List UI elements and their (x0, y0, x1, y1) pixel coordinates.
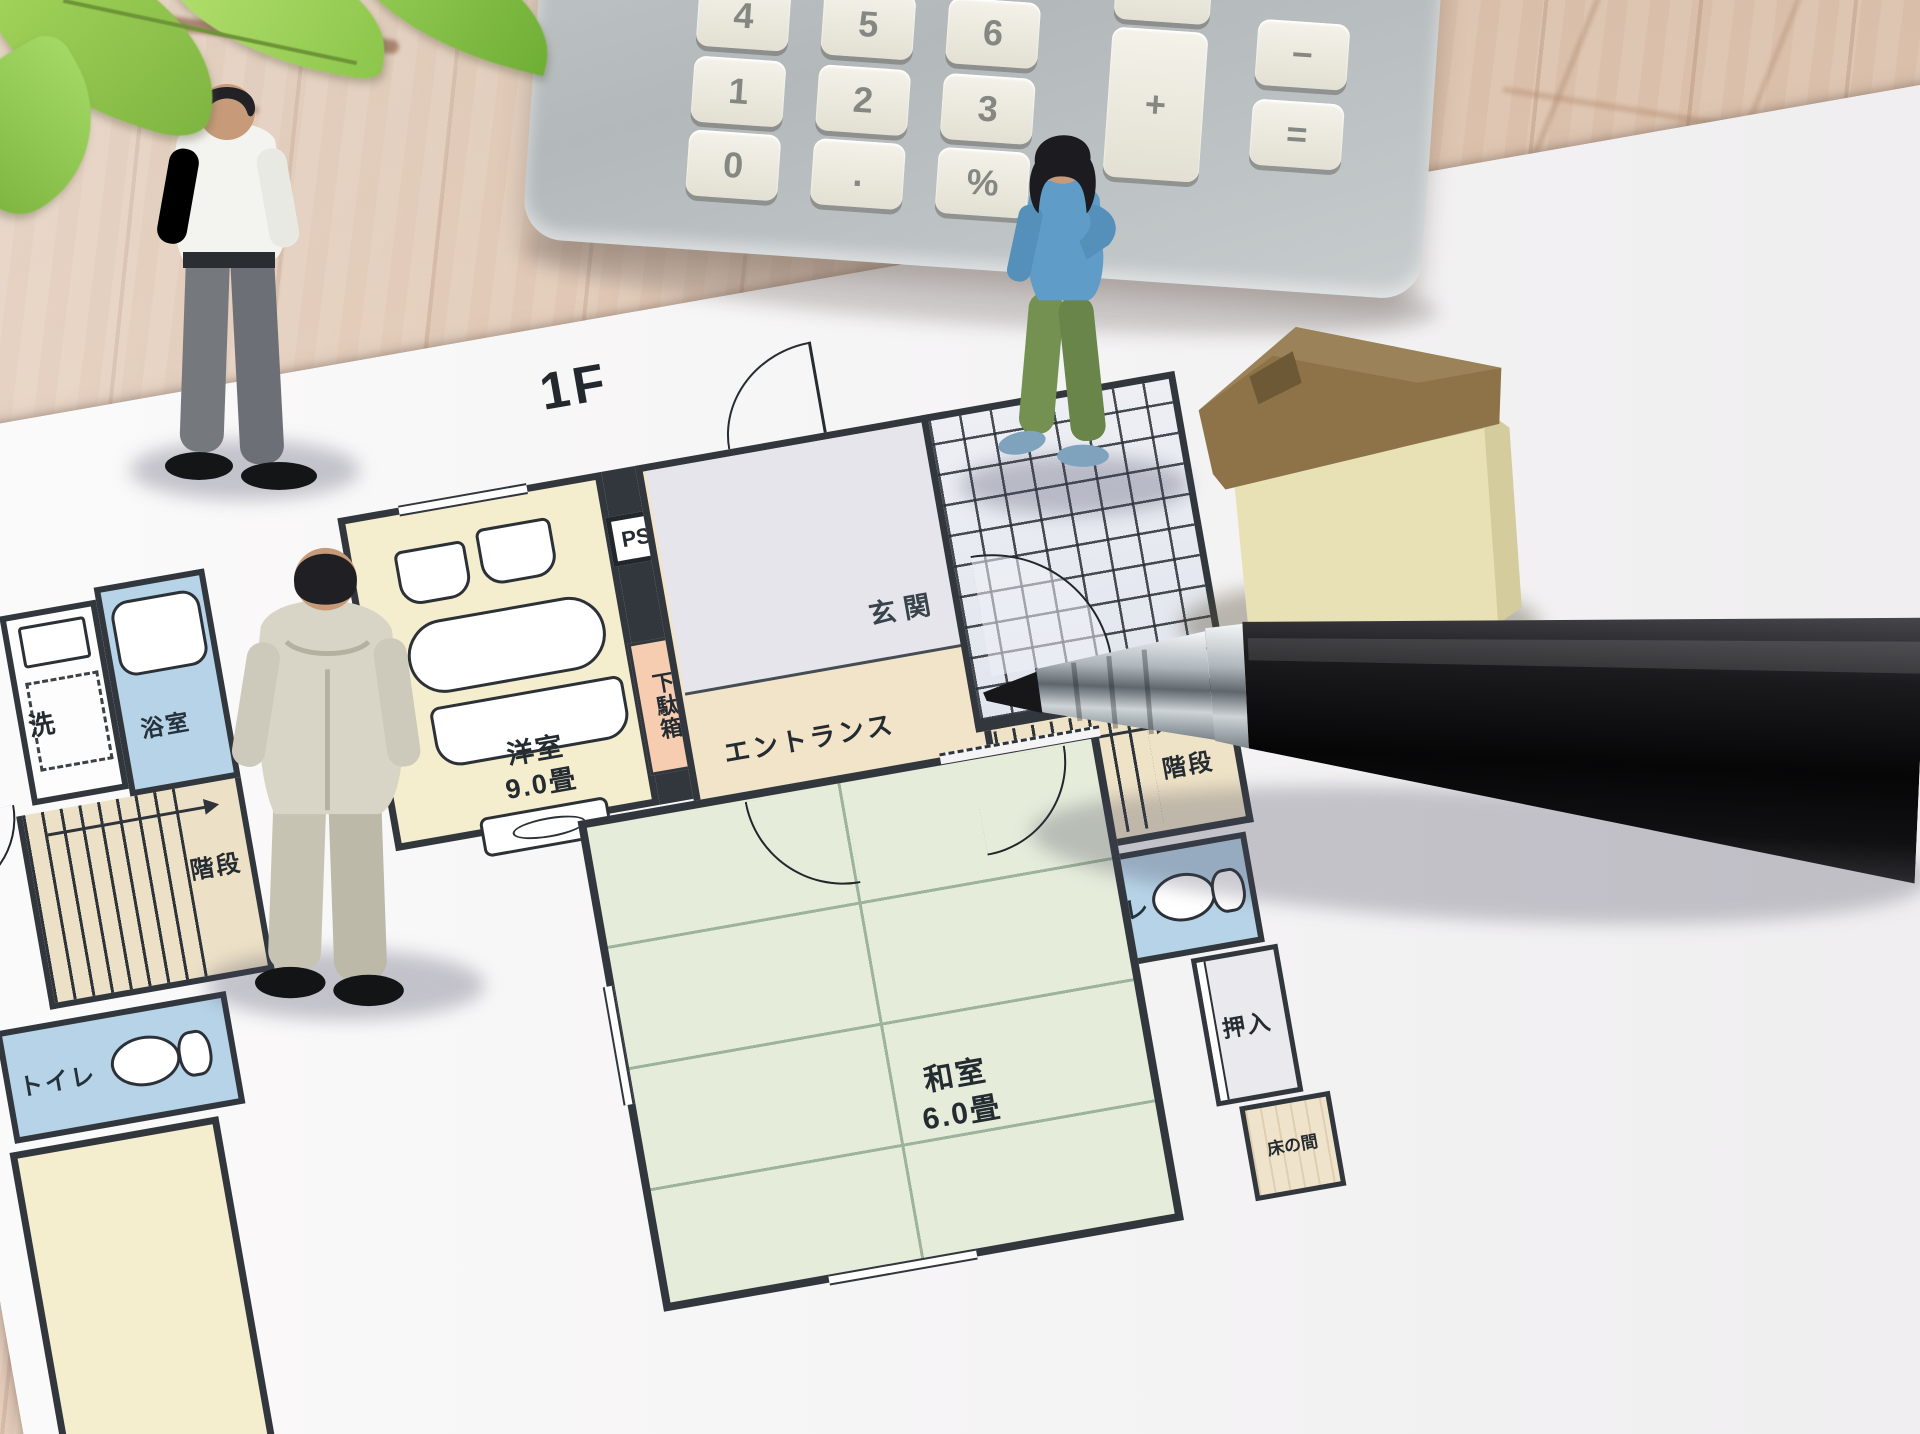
room-closet-label: 押入 (1220, 1007, 1274, 1044)
room-lower-left (9, 1116, 286, 1434)
calc-key-5: 5 (820, 0, 916, 61)
calc-key-equals: = (1249, 98, 1345, 170)
room-tokonoma-label: 床の間 (1266, 1131, 1320, 1161)
room-closet: 押入 (1191, 944, 1304, 1107)
calc-key-2: 2 (815, 64, 911, 136)
figure-man-center (208, 540, 443, 1010)
figure-man-left (115, 80, 335, 500)
room-genkan-label: 玄関 (866, 588, 941, 633)
calc-key-minus: − (1254, 19, 1350, 91)
photo-scene: 1F 洋室 9.0畳 PS (0, 0, 1920, 1434)
bathtub-icon (109, 588, 211, 678)
room-japanese-label: 和室 6.0畳 (883, 1046, 1034, 1144)
room-toilet-left-label: トイレ (17, 1061, 99, 1104)
calc-key-multiply: × (1113, 0, 1213, 25)
outdoor-unit-fan (511, 811, 587, 844)
armchair-icon (474, 517, 559, 587)
sink-icon (17, 616, 91, 669)
front-door-arc (712, 342, 826, 450)
room-laundry-label: 洗 (26, 707, 59, 744)
toilet-bowl-icon (107, 1030, 185, 1091)
ballpoint-pen (969, 575, 1920, 926)
toilet-tank-icon (174, 1028, 215, 1079)
calc-key-0: 0 (685, 129, 781, 201)
calc-key-4: 4 (696, 0, 792, 52)
door-arc (745, 785, 861, 901)
calc-key-1: 1 (690, 55, 786, 127)
room-genkan: 玄関 (646, 422, 966, 696)
calc-key-6: 6 (945, 0, 1041, 69)
plan-title: 1F (535, 350, 614, 426)
room-bathroom-label: 浴室 (139, 707, 193, 744)
room-tokonoma: 床の間 (1239, 1091, 1346, 1202)
calc-key-dot: . (810, 138, 906, 210)
room-japanese-name: 和室 (921, 1054, 990, 1098)
figure-woman-right (972, 122, 1157, 512)
